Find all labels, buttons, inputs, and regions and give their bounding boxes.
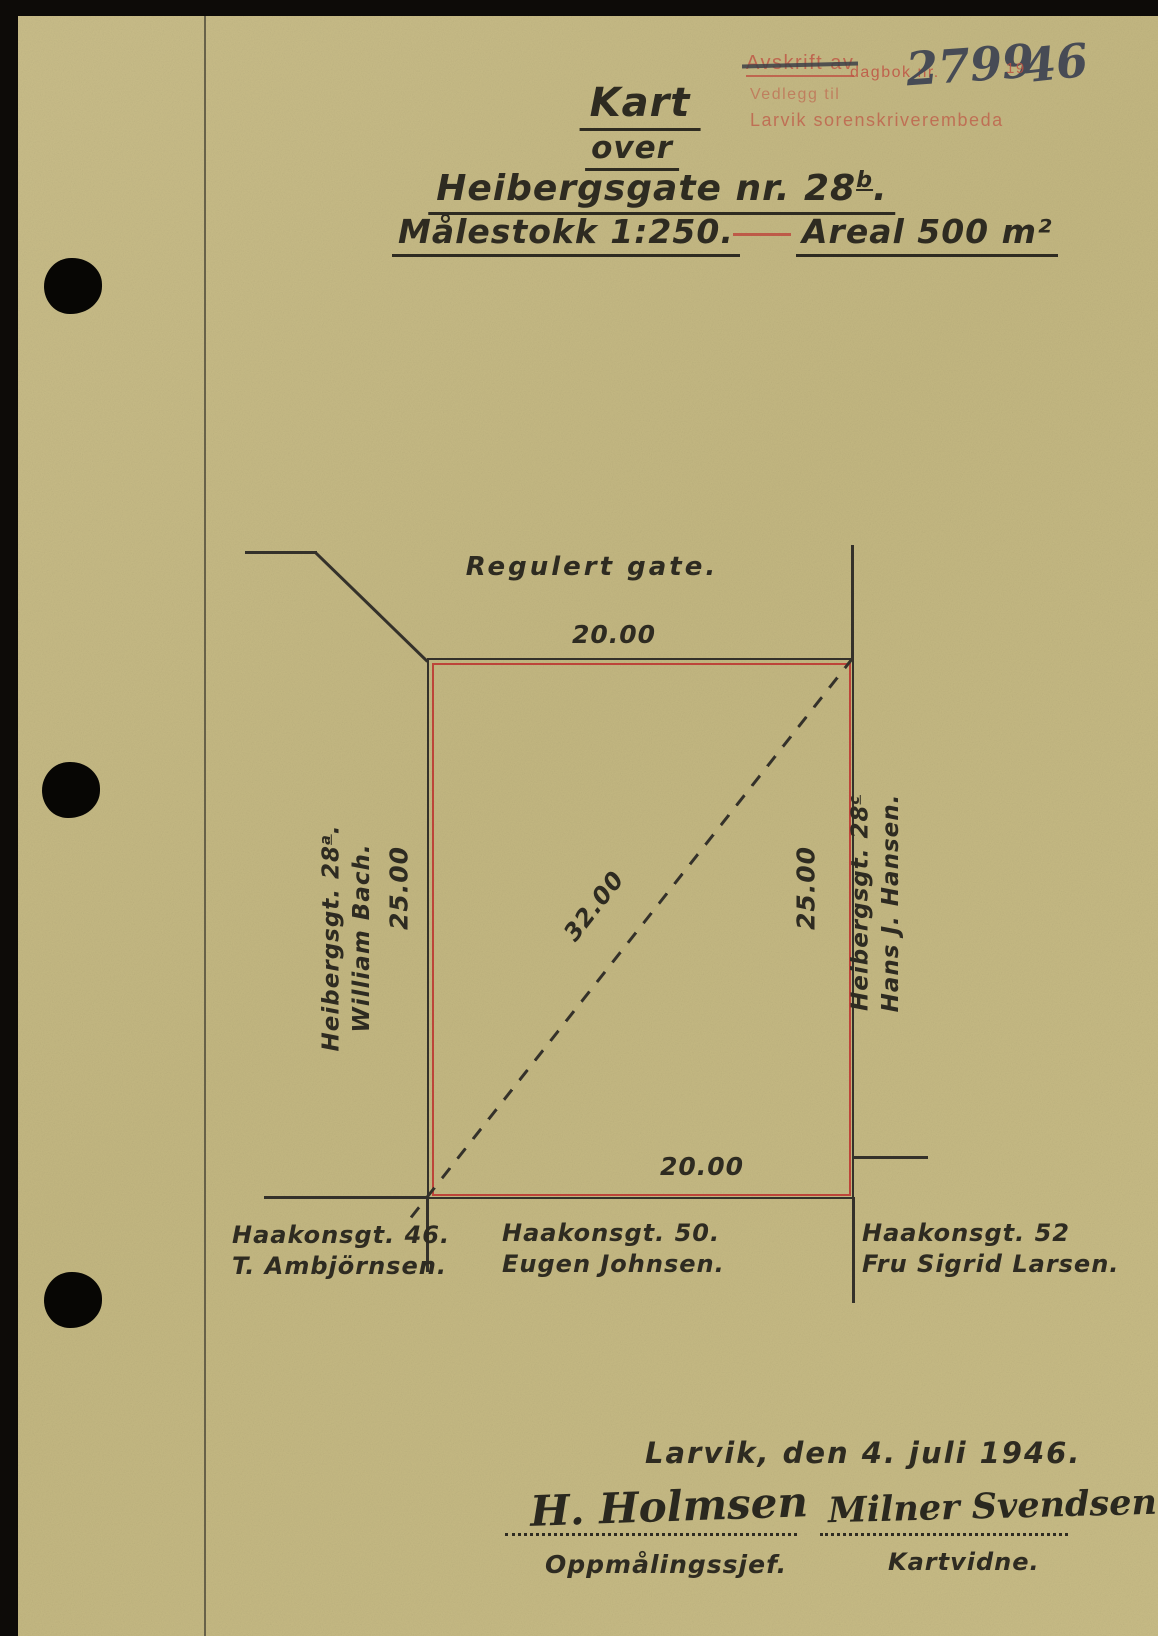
stamp-office-line: Larvik sorenskriverembeda: [750, 110, 1004, 131]
neighbor-west-owner: William Bach.: [347, 825, 377, 1052]
margin-rule: [204, 16, 206, 1636]
dimension-bottom: 20.00: [660, 1152, 744, 1181]
neighbor-east-owner: Hans J. Hansen.: [876, 794, 906, 1013]
signature-right-name: Milner Svendsen: [828, 1482, 1158, 1532]
title-street: Heibergsgate nr. 28b.: [428, 167, 895, 215]
street-label-regulert-gate: Regulert gate.: [466, 552, 718, 582]
neighbor-south-1-street: Haakonsgt. 46.: [232, 1220, 450, 1251]
stamp-year-prefix: 19: [1006, 60, 1026, 77]
neighbor-east-street: Heibergsgt. 28c: [846, 794, 877, 1013]
red-dash-mark: [733, 233, 791, 236]
signature-right-title: Kartvidne.: [888, 1548, 1040, 1576]
neighbor-south-1-owner: T. Ambjörnsen.: [232, 1251, 450, 1282]
neighbor-south-1-label: Haakonsgt. 46. T. Ambjörnsen.: [232, 1220, 450, 1282]
title-kart: Kart: [580, 80, 701, 131]
year-handwritten: 46: [1021, 33, 1090, 93]
title-street-period: .: [873, 168, 888, 209]
title-street-main: Heibergsgate nr. 28: [436, 168, 856, 209]
boundary-ext-south-west-horizontal: [264, 1196, 428, 1199]
title-area: Areal 500 m²: [796, 212, 1058, 257]
neighbor-south-2-owner: Eugen Johnsen.: [502, 1249, 725, 1280]
neighbor-west-label: Heibergsgt. 28a. William Bach.: [317, 825, 377, 1052]
signature-left-title: Oppmålingssjef.: [545, 1550, 787, 1579]
neighbor-west-street: Heibergsgt. 28a.: [317, 825, 348, 1052]
boundary-line-west-street: [245, 551, 317, 554]
title-over: over: [585, 130, 679, 171]
place-date-line: Larvik, den 4. juli 1946.: [645, 1436, 1081, 1470]
neighbor-south-3-owner: Fru Sigrid Larsen.: [862, 1249, 1119, 1280]
title-street-superscript: b: [856, 167, 873, 193]
dimension-right: 25.00: [792, 846, 821, 930]
boundary-ext-north-east: [851, 545, 854, 660]
boundary-ext-east: [854, 1156, 928, 1159]
dimension-left: 25.00: [385, 846, 414, 930]
neighbor-east-label: Heibergsgt. 28c Hans J. Hansen.: [846, 794, 906, 1013]
neighbor-south-2-label: Haakonsgt. 50. Eugen Johnsen.: [502, 1218, 725, 1280]
scanned-document-page: Avskrift av dagbok nr. 2799 19 46 Vedleg…: [0, 0, 1158, 1636]
neighbor-south-3-label: Haakonsgt. 52 Fru Sigrid Larsen.: [862, 1218, 1119, 1280]
signature-left-dotted-line: [505, 1532, 797, 1536]
signature-right-dotted-line: [820, 1532, 1068, 1536]
dimension-top: 20.00: [572, 620, 656, 649]
neighbor-south-2-street: Haakonsgt. 50.: [502, 1218, 725, 1249]
title-scale: Målestokk 1:250.: [392, 212, 740, 257]
neighbor-south-3-street: Haakonsgt. 52: [862, 1218, 1119, 1249]
signature-left-name: H. Holmsen: [529, 1477, 808, 1536]
boundary-ext-south-east: [852, 1197, 855, 1303]
plot-outline-red: [432, 663, 851, 1196]
stamp-attachment-line: Vedlegg til: [750, 86, 840, 104]
